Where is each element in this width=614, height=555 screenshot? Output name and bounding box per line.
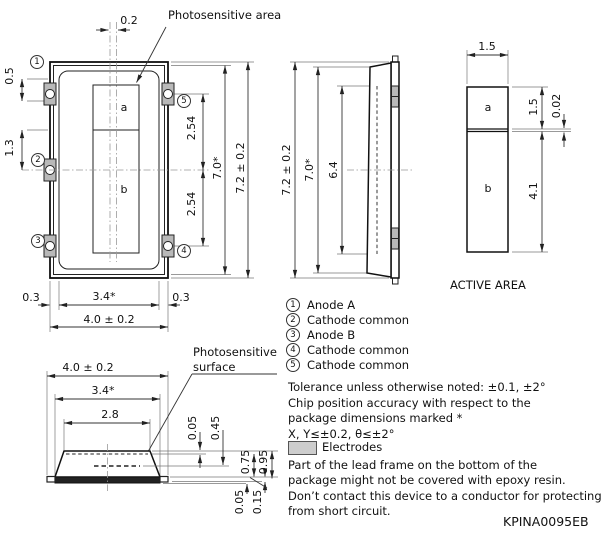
pin-list-item: 3 Anode B — [286, 328, 355, 342]
dim-side-height-outer: 7.2 ± 0.2 — [281, 144, 293, 195]
pin-callout-1: 1 — [30, 55, 44, 69]
chip-section-a-label: a — [121, 102, 128, 114]
pin-label: Anode B — [307, 328, 355, 342]
pin-number-badge: 1 — [286, 298, 300, 312]
pin-number-badge: 4 — [286, 343, 300, 357]
dim-active-a-height: 1.5 — [528, 98, 540, 116]
dim-bv-surf-depth: 0.45 — [210, 416, 222, 441]
photosensitive-surface-label-2: surface — [193, 361, 236, 373]
electrodes-legend-label: Electrodes — [322, 441, 382, 454]
dim-active-width: 1.5 — [478, 41, 496, 53]
dim-bottom-right: 0.3 — [172, 292, 190, 304]
active-area-linework — [467, 50, 571, 252]
dim-bv-outer: 4.0 ± 0.2 — [62, 362, 113, 374]
dim-bottom-outer: 4.0 ± 0.2 — [83, 314, 134, 326]
photosensitive-area-label: Photosensitive area — [168, 9, 281, 21]
note-leadframe-3: Don’t contact this device to a conductor… — [288, 490, 602, 503]
drawing-code: KPINA0095EB — [503, 514, 589, 529]
active-area-caption: ACTIVE AREA — [450, 279, 526, 291]
active-a-label: a — [485, 102, 492, 114]
dim-side-window: 6.4 — [328, 161, 340, 179]
pin-callout-2: 2 — [31, 153, 45, 167]
dim-front-height-outer: 7.2 ± 0.2 — [235, 142, 247, 193]
electrodes-legend-swatch — [288, 441, 317, 455]
dim-front-height-inner: 7.0* — [212, 157, 224, 180]
dim-left-mid: 1.3 — [4, 139, 16, 157]
dim-bottom-left: 0.3 — [22, 292, 40, 304]
note-leadframe-2: package might not be covered with epoxy … — [288, 474, 566, 487]
dim-right-lower: 2.54 — [186, 192, 198, 217]
note-leadframe-4: from short circuit. — [288, 505, 391, 518]
dim-bv-window: 2.8 — [101, 409, 119, 421]
dim-bv-surf-offset: 0.05 — [187, 416, 199, 441]
pin-label: Cathode common — [307, 313, 409, 327]
note-tolerance: Tolerance unless otherwise noted: ±0.1, … — [288, 381, 546, 394]
pin-callout-3: 3 — [31, 234, 45, 248]
pin-number-badge: 5 — [286, 358, 300, 372]
pin-list-item: 2 Cathode common — [286, 313, 409, 327]
dim-bv-inner: 3.4* — [92, 385, 115, 397]
note-leadframe-1: Part of the lead frame on the bottom of … — [288, 459, 537, 472]
active-b-label: b — [485, 183, 492, 195]
dim-bv-foot-a: 0.05 — [234, 490, 246, 515]
photosensitive-surface-label-1: Photosensitive — [193, 346, 277, 358]
note-chip-position-2: package dimensions marked * — [288, 412, 462, 425]
dim-right-upper: 2.54 — [186, 116, 198, 141]
pin-list-item: 4 Cathode common — [286, 343, 409, 357]
dim-side-height-inner: 7.0* — [304, 159, 316, 182]
pin-number-badge: 2 — [286, 313, 300, 327]
dim-active-b-height: 4.1 — [528, 182, 540, 200]
pin-list-item: 1 Anode A — [286, 298, 355, 312]
pin-number-badge: 3 — [286, 328, 300, 342]
photosensitive-surface-leader — [143, 374, 193, 462]
pin-label: Anode A — [307, 298, 355, 312]
dim-bv-body-height: 0.75 — [240, 450, 252, 475]
dim-left-top: 0.5 — [4, 67, 16, 85]
bottom-view-linework — [47, 371, 278, 494]
note-chip-position-1: Chip position accuracy with respect to t… — [288, 397, 531, 410]
package-outline-drawing: 0.2 Photosensitive area 0.5 1.3 2.54 2.5… — [0, 0, 614, 555]
pin-callout-4: 4 — [177, 244, 191, 258]
dim-offset-top: 0.2 — [120, 15, 138, 27]
pin-label: Cathode common — [307, 358, 409, 372]
dim-bottom-inner: 3.4* — [93, 291, 116, 303]
dim-bv-total-height: 0.95 — [258, 450, 270, 475]
pin-callout-5: 5 — [177, 94, 191, 108]
chip-section-b-label: b — [121, 184, 128, 196]
pin-label: Cathode common — [307, 343, 409, 357]
dim-active-gap: 0.02 — [551, 94, 563, 119]
pin-list-item: 5 Cathode common — [286, 358, 409, 372]
note-xy-tolerance: X, Y≤±0.2, θ≤±2° — [288, 428, 394, 441]
dim-bv-foot-b: 0.15 — [252, 490, 264, 515]
